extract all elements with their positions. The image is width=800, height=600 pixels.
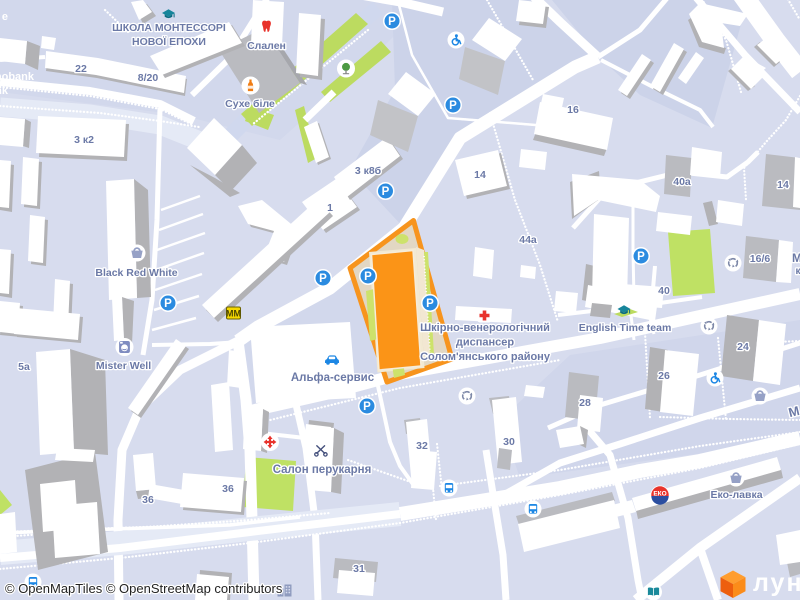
- svg-text:40а: 40а: [673, 176, 691, 188]
- svg-text:Альфа-сервис: Альфа-сервис: [291, 372, 375, 384]
- svg-text:14: 14: [474, 169, 486, 181]
- svg-text:monobank: monobank: [0, 71, 35, 83]
- svg-text:Mister Well: Mister Well: [96, 360, 151, 372]
- svg-text:14: 14: [777, 179, 789, 191]
- svg-text:e: e: [2, 11, 8, 23]
- svg-text:ШКОЛА МОНТЕССОРІ: ШКОЛА МОНТЕССОРІ: [112, 22, 226, 34]
- svg-text:22: 22: [75, 63, 87, 75]
- svg-text:© OpenMapTiles © OpenStreetMap: © OpenMapTiles © OpenStreetMap contribut…: [5, 581, 283, 596]
- svg-text:Шкірно-венерологічний: Шкірно-венерологічний: [420, 322, 550, 334]
- svg-text:3 к8б: 3 к8б: [355, 165, 382, 177]
- svg-text:16/6: 16/6: [750, 253, 771, 265]
- svg-text:диспансер: диспансер: [456, 337, 515, 349]
- svg-text:Салон перукарня: Салон перукарня: [273, 464, 372, 476]
- svg-text:24: 24: [737, 341, 749, 353]
- svg-text:Слален: Слален: [247, 40, 286, 52]
- svg-text:44а: 44а: [519, 234, 537, 246]
- svg-text:8/20: 8/20: [138, 72, 159, 84]
- svg-text:16: 16: [567, 104, 579, 116]
- svg-text:36: 36: [142, 494, 154, 506]
- svg-text:nk: nk: [0, 85, 9, 97]
- svg-text:к: к: [795, 266, 800, 277]
- svg-text:40: 40: [658, 285, 670, 297]
- svg-text:English Time team: English Time team: [579, 322, 672, 334]
- svg-text:3 к2: 3 к2: [74, 134, 94, 146]
- svg-text:5а: 5а: [18, 361, 30, 373]
- svg-text:28: 28: [579, 397, 591, 409]
- svg-text:30: 30: [503, 436, 515, 448]
- svg-text:лун: лун: [753, 569, 800, 597]
- svg-text:1: 1: [327, 202, 333, 214]
- svg-text:М: М: [792, 251, 800, 265]
- svg-text:32: 32: [416, 440, 428, 452]
- svg-text:31: 31: [353, 563, 365, 575]
- svg-text:Солом'янського району: Солом'янського району: [420, 351, 551, 363]
- svg-text:26: 26: [658, 370, 670, 382]
- svg-text:ЕКО: ЕКО: [653, 490, 666, 497]
- svg-text:Сухе біле: Сухе біле: [225, 98, 275, 110]
- svg-text:36: 36: [222, 483, 234, 495]
- svg-text:MM: MM: [226, 308, 241, 318]
- svg-text:Еко-лавка: Еко-лавка: [710, 489, 762, 501]
- svg-text:НОВОЇ ЕПОХИ: НОВОЇ ЕПОХИ: [132, 35, 206, 48]
- svg-text:Black Red White: Black Red White: [95, 267, 177, 279]
